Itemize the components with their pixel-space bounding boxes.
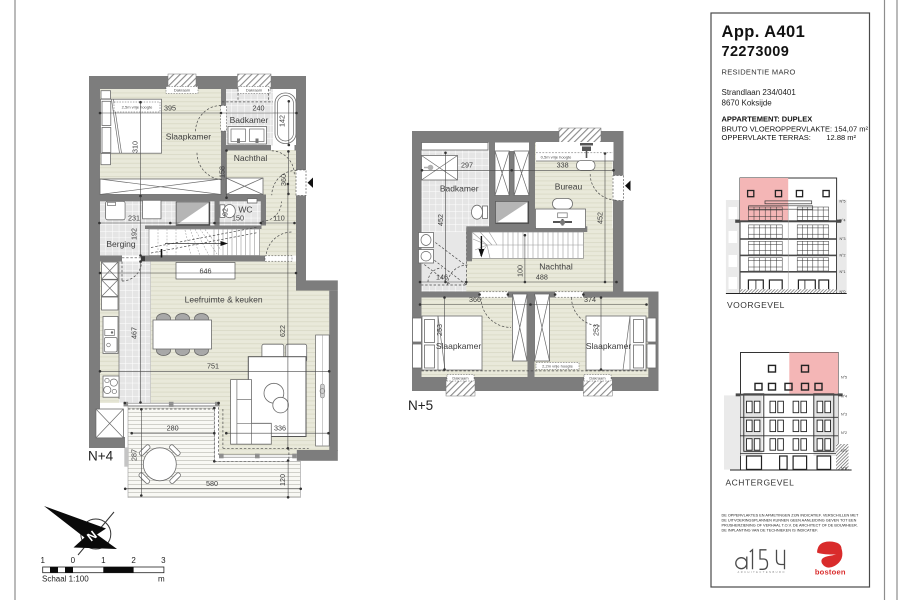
svg-text:2,5m vrije hoogte: 2,5m vrije hoogte: [122, 105, 153, 110]
svg-text:N°3: N°3: [840, 237, 846, 241]
svg-text:336: 336: [274, 423, 286, 432]
svg-text:Slaapkamer: Slaapkamer: [166, 132, 212, 142]
svg-text:Nachthal: Nachthal: [234, 153, 268, 163]
svg-text:App. A401: App. A401: [722, 23, 806, 41]
svg-text:287: 287: [130, 449, 139, 461]
svg-text:APPARTEMENT: DUPLEX: APPARTEMENT: DUPLEX: [722, 115, 813, 124]
svg-text:580: 580: [206, 479, 218, 488]
svg-text:N°3: N°3: [841, 413, 847, 417]
svg-text:395: 395: [164, 104, 176, 113]
svg-text:Badkamer: Badkamer: [230, 115, 269, 125]
svg-text:253: 253: [592, 324, 601, 336]
svg-text:374: 374: [584, 295, 596, 304]
svg-text:Dakraam: Dakraam: [246, 88, 263, 93]
svg-text:646: 646: [200, 267, 212, 276]
svg-text:DE UITVOERINGSPLANNEN KUNNEN G: DE UITVOERINGSPLANNEN KUNNEN GEEN AANLEI…: [722, 519, 857, 523]
svg-text:WC: WC: [238, 205, 252, 215]
svg-text:Leefruimte & keuken: Leefruimte & keuken: [185, 294, 263, 304]
svg-text:1: 1: [40, 556, 45, 565]
svg-text:DE OPPERVLAKTES EN AFMETINGEN: DE OPPERVLAKTES EN AFMETINGEN ZIJN INDIC…: [722, 514, 859, 518]
svg-text:Schaal 1:100: Schaal 1:100: [42, 575, 89, 584]
svg-text:Berging: Berging: [106, 239, 136, 249]
svg-text:92: 92: [221, 208, 230, 216]
svg-text:1: 1: [101, 556, 106, 565]
svg-text:297: 297: [461, 161, 473, 170]
svg-text:ACHTERGEVEL: ACHTERGEVEL: [726, 478, 795, 488]
svg-text:622: 622: [278, 325, 287, 337]
svg-text:N°4: N°4: [840, 219, 846, 223]
svg-text:120: 120: [278, 474, 287, 486]
svg-text:ARCHITECTENBURO: ARCHITECTENBURO: [738, 570, 786, 574]
svg-text:N°2: N°2: [840, 254, 846, 258]
svg-text:2,2m vrije hoogte: 2,2m vrije hoogte: [542, 364, 573, 369]
svg-text:338: 338: [557, 161, 569, 170]
svg-text:146: 146: [436, 272, 448, 281]
svg-text:Dakraam: Dakraam: [174, 88, 191, 93]
svg-text:150: 150: [232, 213, 244, 222]
svg-text:N°1: N°1: [841, 449, 847, 453]
svg-text:N+4: N+4: [88, 449, 114, 464]
svg-text:231: 231: [128, 213, 140, 222]
svg-text:Nachthal: Nachthal: [539, 262, 573, 272]
svg-text:N+5: N+5: [408, 398, 433, 413]
svg-text:0,5m vrije hoogte: 0,5m vrije hoogte: [541, 154, 572, 159]
svg-text:158: 158: [217, 166, 226, 178]
svg-text:751: 751: [207, 362, 219, 371]
svg-text:N°4: N°4: [841, 395, 847, 399]
svg-text:Badkamer: Badkamer: [440, 183, 479, 193]
svg-text:Bureau: Bureau: [555, 181, 583, 191]
svg-text:N°5: N°5: [840, 200, 846, 204]
svg-text:Slaapkamer: Slaapkamer: [436, 341, 482, 351]
svg-text:488: 488: [536, 272, 548, 281]
svg-text:VOORGEVEL: VOORGEVEL: [727, 300, 785, 310]
svg-text:Dakraam: Dakraam: [589, 375, 606, 380]
svg-text:Dakraam: Dakraam: [452, 375, 469, 380]
svg-text:2: 2: [131, 556, 136, 565]
svg-text:Slaapkamer: Slaapkamer: [586, 341, 632, 351]
svg-text:100: 100: [516, 265, 525, 277]
svg-text:310: 310: [130, 141, 139, 153]
svg-text:RESIDENTIE MARO: RESIDENTIE MARO: [722, 68, 796, 77]
svg-text:DE INPLANTING VAN DE TECHNIEKE: DE INPLANTING VAN DE TECHNIEKEN IS INDIC…: [722, 529, 819, 533]
svg-text:Strandlaan 234/0401: Strandlaan 234/0401: [722, 88, 797, 97]
svg-text:240: 240: [253, 104, 265, 113]
svg-text:3: 3: [161, 556, 166, 565]
svg-text:m: m: [158, 575, 165, 584]
svg-text:0: 0: [71, 556, 76, 565]
svg-text:142: 142: [277, 115, 286, 127]
svg-text:N°5: N°5: [841, 376, 847, 380]
svg-text:N°0: N°0: [840, 290, 846, 294]
svg-text:8670 Koksijde: 8670 Koksijde: [722, 99, 773, 108]
svg-text:bostoen: bostoen: [815, 567, 846, 576]
svg-text:OPPERVLAKTE TERRAS:: OPPERVLAKTE TERRAS:: [722, 133, 811, 142]
svg-text:N°0: N°0: [841, 467, 847, 471]
svg-text:253: 253: [435, 324, 444, 336]
svg-text:12.88 m²: 12.88 m²: [826, 133, 856, 142]
svg-text:452: 452: [436, 214, 445, 226]
svg-text:N°1: N°1: [840, 270, 846, 274]
svg-text:110: 110: [273, 213, 284, 222]
svg-text:467: 467: [130, 327, 139, 339]
svg-text:366: 366: [469, 295, 481, 304]
svg-text:452: 452: [596, 212, 605, 224]
svg-text:280: 280: [167, 423, 179, 432]
svg-text:PRIJSHERZIENING OF VERHAAL T.O: PRIJSHERZIENING OF VERHAAL T.O.V. DE ARC…: [722, 524, 858, 528]
svg-text:72273009: 72273009: [722, 44, 790, 60]
svg-text:N°2: N°2: [841, 431, 847, 435]
